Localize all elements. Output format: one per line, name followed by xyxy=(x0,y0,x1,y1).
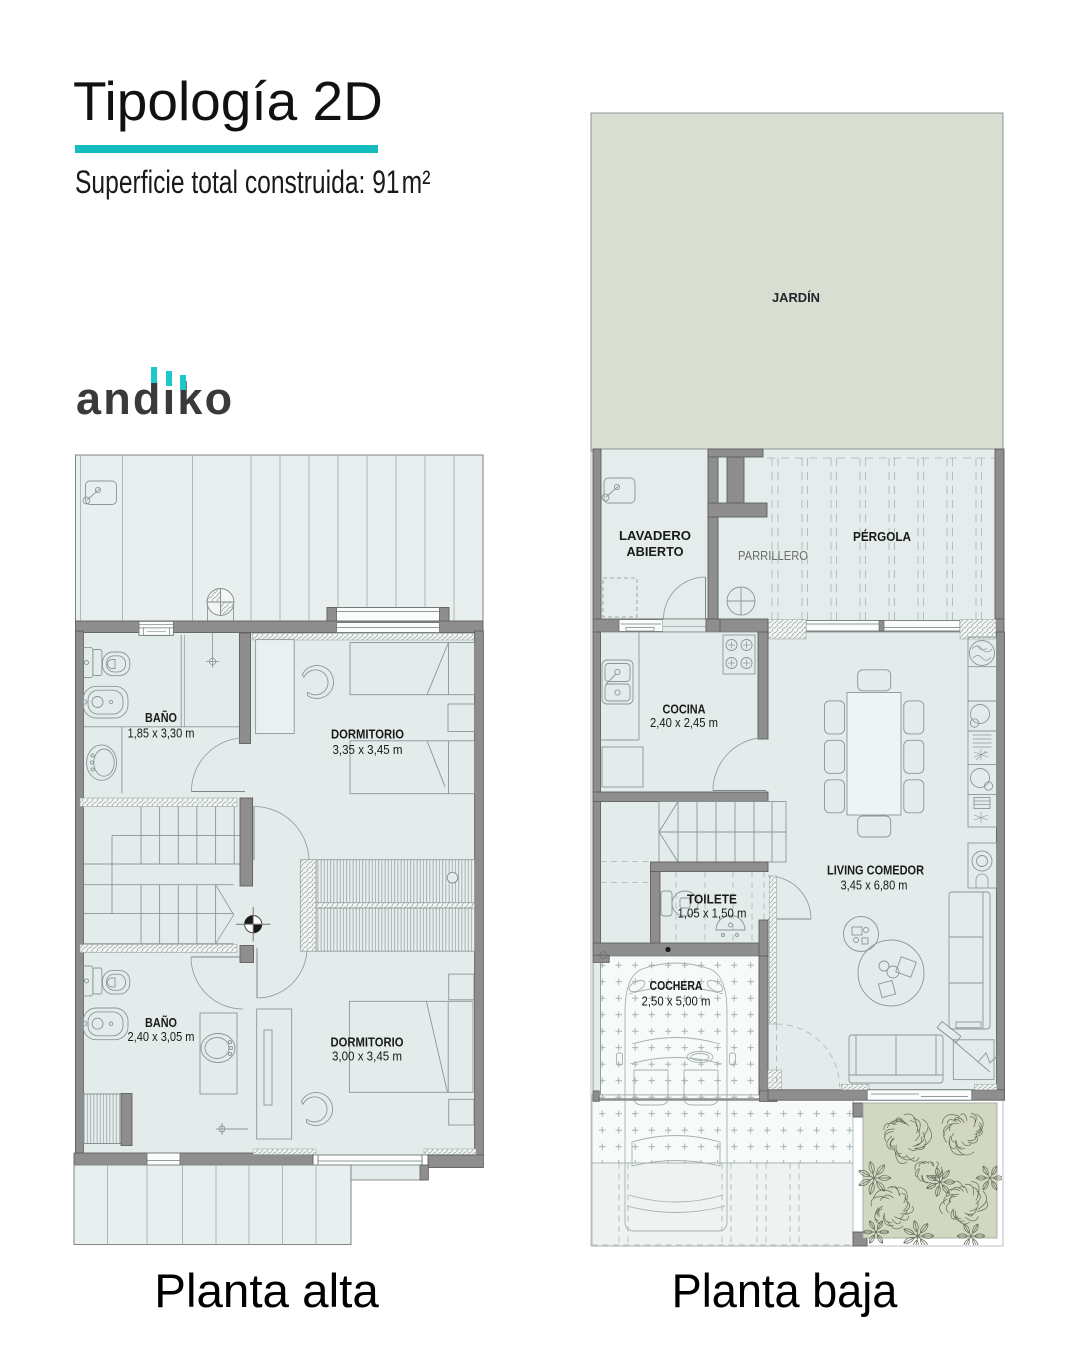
svg-text:LAVADERO: LAVADERO xyxy=(619,528,691,543)
svg-text:DORMITORIO: DORMITORIO xyxy=(331,1035,404,1049)
svg-text:COCHERA: COCHERA xyxy=(650,978,703,993)
svg-text:ABIERTO: ABIERTO xyxy=(627,544,684,559)
svg-text:BAÑO: BAÑO xyxy=(145,710,177,725)
svg-text:JARDÍN: JARDÍN xyxy=(772,290,820,305)
svg-text:2,40 x 3,05 m: 2,40 x 3,05 m xyxy=(128,1029,195,1044)
svg-text:DORMITORIO: DORMITORIO xyxy=(331,728,404,742)
svg-text:BAÑO: BAÑO xyxy=(145,1015,177,1030)
svg-text:PÉRGOLA: PÉRGOLA xyxy=(853,529,911,544)
svg-text:PARRILLERO: PARRILLERO xyxy=(738,548,808,563)
svg-text:3,45 x 6,80 m: 3,45 x 6,80 m xyxy=(841,878,908,893)
svg-text:1,85 x 3,30 m: 1,85 x 3,30 m xyxy=(128,726,195,741)
svg-text:2,50 x 5,00 m: 2,50 x 5,00 m xyxy=(642,994,711,1009)
svg-text:3,00 x 3,45 m: 3,00 x 3,45 m xyxy=(332,1048,402,1063)
svg-text:TOILETE: TOILETE xyxy=(687,892,737,907)
svg-text:1,05 x 1,50 m: 1,05 x 1,50 m xyxy=(678,906,747,921)
svg-text:LIVING COMEDOR: LIVING COMEDOR xyxy=(827,863,924,878)
svg-text:2,40 x 2,45 m: 2,40 x 2,45 m xyxy=(650,715,718,730)
svg-text:3,35 x 3,45 m: 3,35 x 3,45 m xyxy=(333,742,403,757)
